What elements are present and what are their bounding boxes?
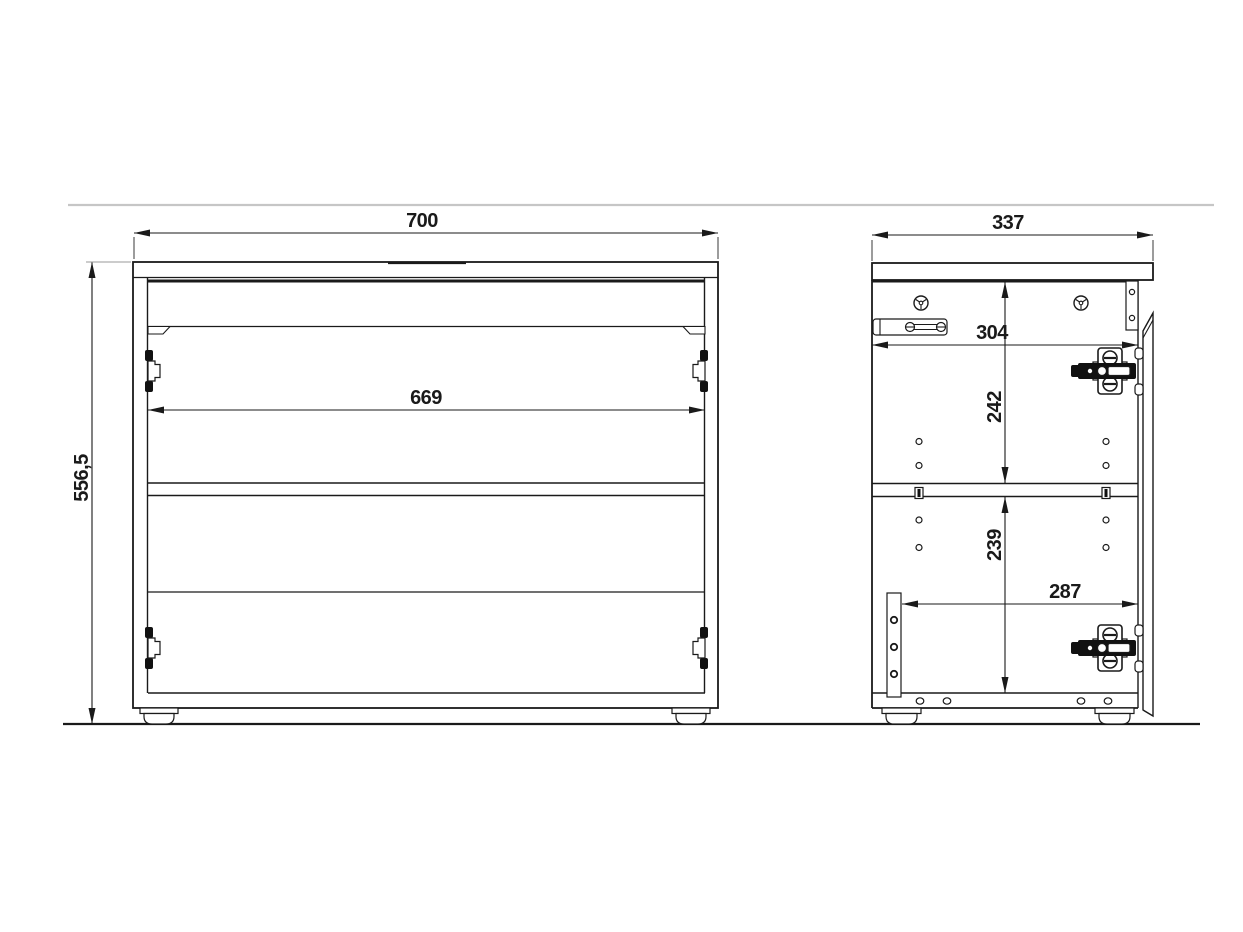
hinge-pad <box>145 381 153 392</box>
hinge-pad <box>700 627 708 638</box>
foot-collar <box>672 708 710 714</box>
arrowhead-right <box>1122 342 1138 349</box>
hinge-cup-screw <box>1135 661 1143 672</box>
arrowhead-right <box>1137 232 1153 239</box>
front-foot-right <box>672 708 710 724</box>
screw-slot <box>1076 300 1080 303</box>
dim-overall-height: 556,5 <box>71 262 131 724</box>
hinge-arm-cap <box>1071 365 1080 377</box>
arrowhead-left <box>134 230 150 237</box>
back-bracket <box>887 593 901 697</box>
hinge-pad <box>700 350 708 361</box>
hinge-arm-detail <box>1108 367 1130 376</box>
front-carcass <box>133 262 718 708</box>
bottom-panel-holes <box>916 698 1112 704</box>
dim-lower-inner-depth: 287 <box>902 581 1138 608</box>
foot-collar <box>1095 708 1134 714</box>
arrowhead-top <box>1002 497 1009 513</box>
pin-hole <box>1103 463 1109 469</box>
door-panel <box>1143 313 1153 716</box>
technical-drawing-page: 700 556,5 <box>0 0 1243 932</box>
dim-overall-depth: 337 <box>872 212 1153 261</box>
hinge-arm-detail <box>1088 646 1092 650</box>
pin-hole <box>1103 545 1109 551</box>
arrowhead-bottom <box>89 708 96 724</box>
cam-screw-back <box>914 296 928 310</box>
arrowhead-bottom <box>1002 467 1009 483</box>
pin-hole <box>1103 517 1109 523</box>
dim-value: 556,5 <box>71 454 93 502</box>
door-slab <box>1143 313 1153 716</box>
arrowhead-left <box>902 601 918 608</box>
hinge-pad <box>145 627 153 638</box>
hinge-arm-detail <box>1108 644 1130 653</box>
hinge-pad <box>145 350 153 361</box>
foot-collar <box>882 708 921 714</box>
dim-value: 700 <box>406 210 438 232</box>
foot-dome <box>144 714 174 725</box>
foot-collar <box>140 708 178 714</box>
front-mounting-strip <box>1126 281 1138 330</box>
pin-hole <box>916 439 922 445</box>
bracket-body <box>887 593 901 697</box>
front-foot-left <box>140 708 178 724</box>
arrowhead-right <box>1122 601 1138 608</box>
hinge-arm-detail <box>1088 369 1092 373</box>
hinge-arm-cap <box>1071 642 1080 654</box>
hinge-cup-screw <box>1135 348 1143 359</box>
hanging-rail-bracket <box>873 319 947 335</box>
screw-slot <box>1082 300 1086 303</box>
dim-lower-compartment-height: 239 <box>984 497 1009 693</box>
dim-overall-width: 700 <box>134 210 718 259</box>
hinge-pad <box>145 658 153 669</box>
arrowhead-left <box>872 232 888 239</box>
top-panel <box>872 263 1153 280</box>
arrowhead-right <box>702 230 718 237</box>
pin-hole <box>916 517 922 523</box>
pin-hole <box>916 463 922 469</box>
cam-screw-front <box>1074 296 1088 310</box>
dim-value: 337 <box>992 212 1024 234</box>
hinge-pad <box>700 381 708 392</box>
dim-value: 239 <box>984 529 1006 561</box>
arrowhead-top <box>1002 282 1009 298</box>
front-view: 700 556,5 <box>71 210 718 724</box>
screw-slot <box>916 300 920 303</box>
pin-hole <box>1103 439 1109 445</box>
side-view: 337 <box>872 212 1153 724</box>
side-hinge-top <box>1071 348 1143 395</box>
foot-dome <box>1099 714 1130 725</box>
dim-value: 669 <box>410 387 442 409</box>
hinge-body <box>148 361 160 381</box>
shelf-clip-pin <box>918 489 921 497</box>
screw-hole <box>916 698 924 704</box>
dim-upper-compartment-height: 242 <box>984 282 1009 483</box>
shelf-pin-holes <box>916 439 1109 551</box>
side-foot-back <box>882 708 921 724</box>
carcass-outline <box>133 262 718 708</box>
side-hinge-bottom <box>1071 625 1143 672</box>
shelf-clip-pin <box>1105 489 1108 497</box>
screw-hole <box>1077 698 1085 704</box>
dim-value: 242 <box>984 391 1006 423</box>
side-foot-front <box>1095 708 1134 724</box>
dim-value: 287 <box>1049 581 1081 603</box>
hinge-cup-screw <box>1135 625 1143 636</box>
foot-dome <box>676 714 706 725</box>
pin-hole <box>916 545 922 551</box>
hinge-arm-detail <box>1098 644 1107 653</box>
arrowhead-top <box>89 262 96 278</box>
arrowhead-bottom <box>1002 677 1009 693</box>
arrowhead-left <box>872 342 888 349</box>
hinge-body <box>148 638 160 658</box>
hinge-body <box>693 361 705 381</box>
screw-slot <box>922 300 926 303</box>
foot-dome <box>886 714 917 725</box>
hinge-arm-detail <box>1098 367 1107 376</box>
dim-value: 304 <box>976 322 1009 344</box>
hinge-cup-screw <box>1135 384 1143 395</box>
side-shelf <box>872 484 1138 499</box>
screw-hole <box>1104 698 1112 704</box>
hinge-body <box>693 638 705 658</box>
screw-hole <box>943 698 951 704</box>
hinge-pad <box>700 658 708 669</box>
